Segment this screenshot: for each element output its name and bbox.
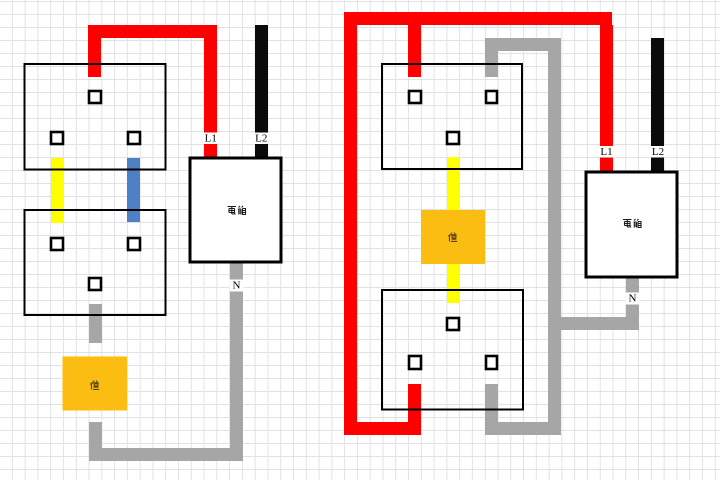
- svg-text:L1: L1: [205, 132, 217, 144]
- svg-text:L2: L2: [255, 132, 267, 144]
- svg-text:L2: L2: [652, 146, 664, 158]
- svg-text:L1: L1: [600, 146, 612, 158]
- svg-text:N: N: [629, 293, 637, 305]
- svg-text:N: N: [233, 280, 241, 292]
